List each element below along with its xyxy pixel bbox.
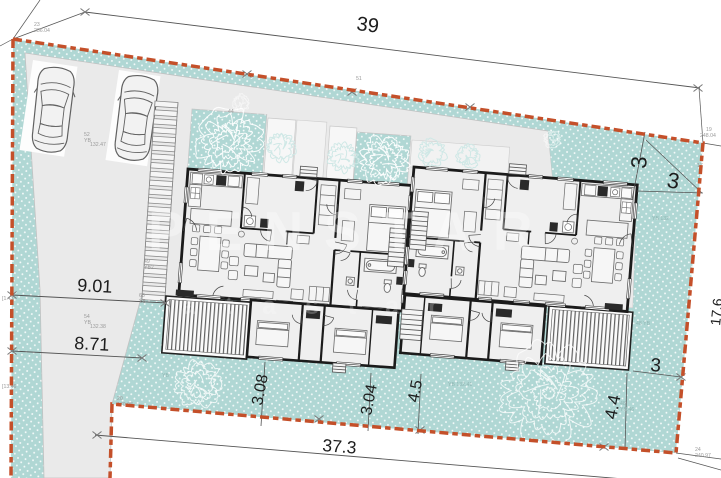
svg-text:9.01: 9.01: [77, 275, 113, 297]
svg-text:48 YB: 48 YB: [636, 321, 651, 327]
svg-text:YB: YB: [162, 373, 169, 379]
svg-text:3: 3: [650, 355, 662, 377]
svg-text:3: 3: [626, 155, 652, 169]
svg-text:240.97: 240.97: [695, 453, 711, 459]
svg-text:248.04: 248.04: [700, 133, 716, 139]
svg-text:132.38: 132.38: [90, 324, 106, 330]
svg-text:YB2: YB2: [144, 265, 154, 271]
svg-text:51: 51: [356, 76, 362, 82]
svg-text:8.71: 8.71: [74, 333, 110, 355]
svg-text:37.3: 37.3: [322, 435, 358, 458]
svg-text:[13.46: [13.46: [2, 384, 17, 390]
svg-text:39: 39: [355, 13, 380, 38]
svg-text:YB 132.41: YB 132.41: [448, 382, 472, 388]
svg-text:a t a s t a r: a t a s t a r: [182, 292, 449, 320]
svg-text:YB: YB: [139, 299, 146, 305]
svg-text:132.47: 132.47: [90, 142, 106, 148]
svg-text:236.04: 236.04: [34, 28, 50, 34]
svg-text:17.6: 17.6: [707, 297, 721, 326]
svg-text:YB 132: YB 132: [652, 216, 669, 222]
svg-text:44: 44: [228, 109, 234, 115]
svg-text:YB.46: YB.46: [620, 407, 634, 413]
svg-text:PENSTAR: PENSTAR: [148, 200, 554, 262]
